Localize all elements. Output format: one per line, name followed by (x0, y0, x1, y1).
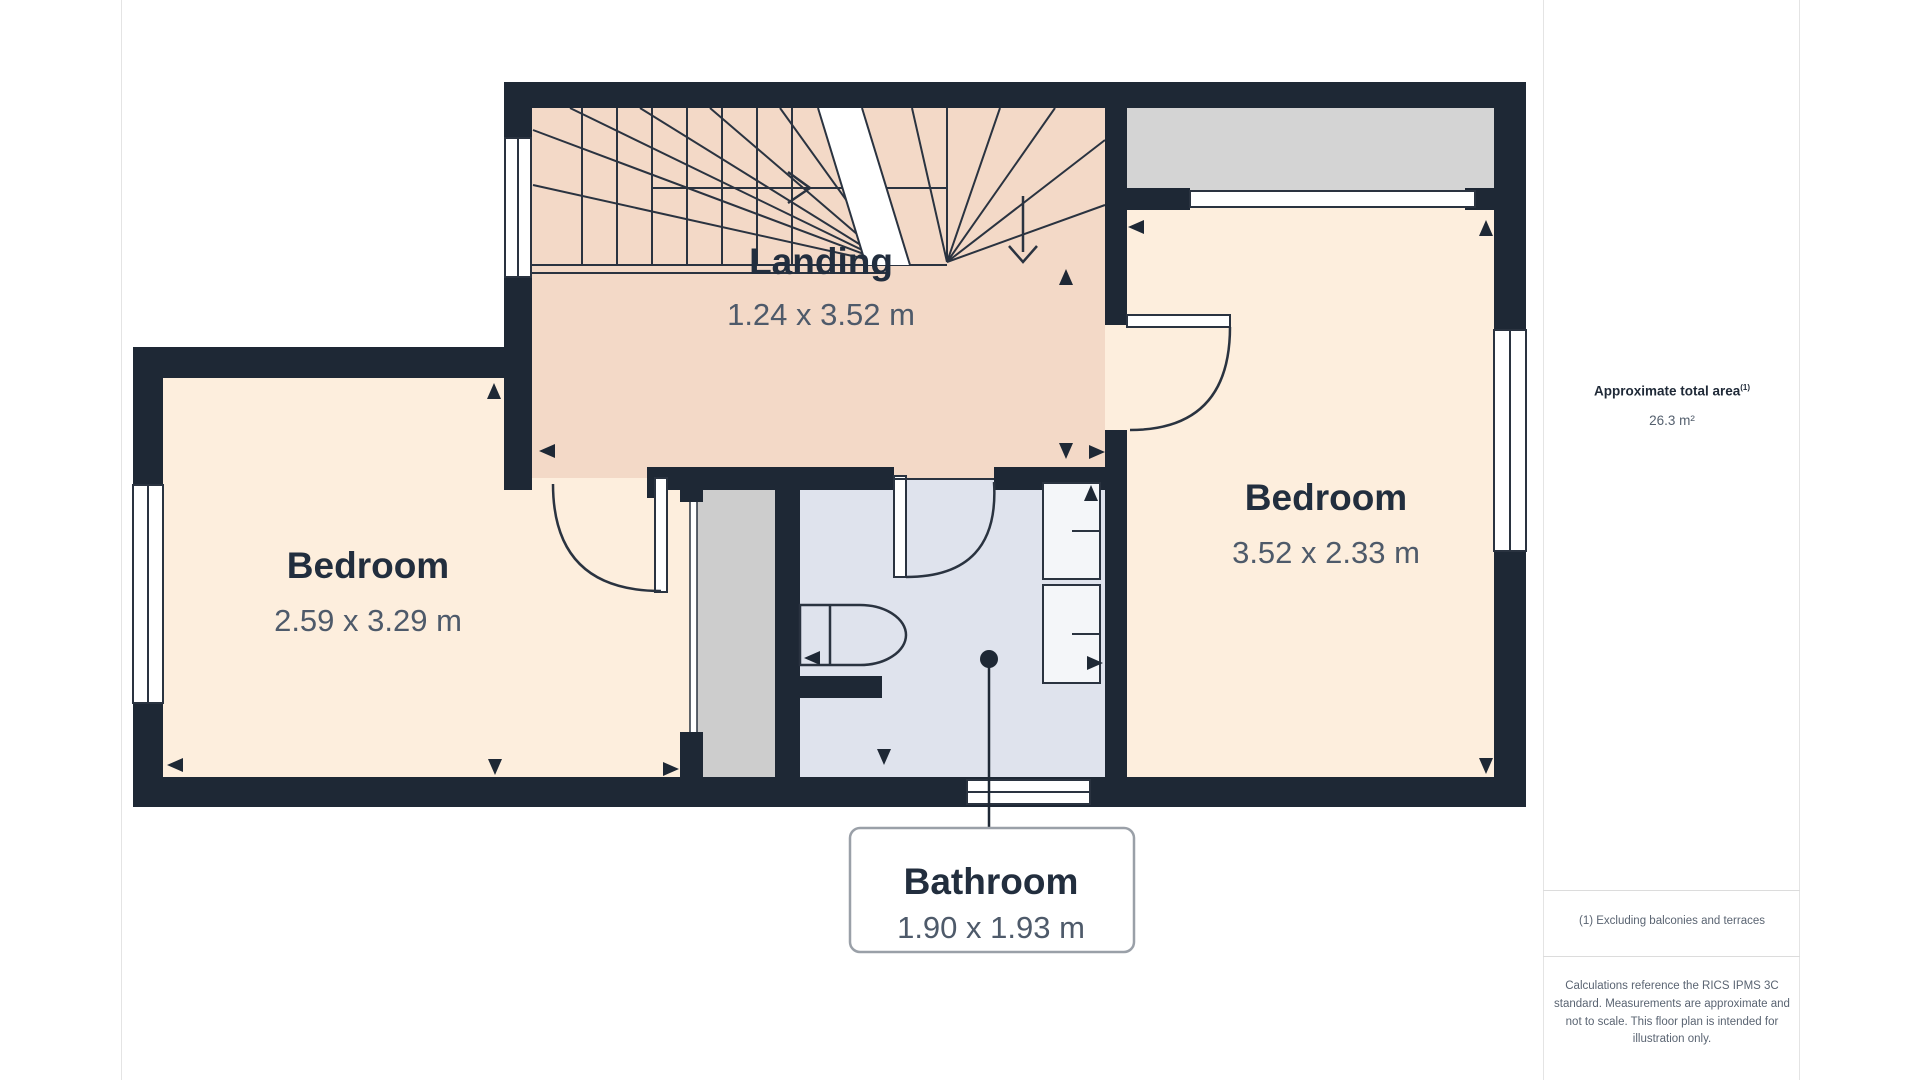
window-stair-left (505, 138, 531, 277)
wall-stair-left-lower (504, 273, 532, 490)
bedroom-left-name: Bedroom (287, 545, 449, 586)
wall-top (504, 82, 1526, 108)
wall-bathroom-right (1105, 430, 1127, 777)
wall-left-upper (133, 347, 163, 487)
bathroom-callout: Bathroom 1.90 x 1.93 m (850, 828, 1134, 952)
sidebar-divider-bottom (1543, 956, 1800, 957)
disclaimer-note: Calculations reference the RICS IPMS 3C … (1552, 978, 1792, 1049)
left-doorway-floor (532, 478, 647, 490)
wall-bathroom-stub (800, 676, 882, 698)
leader-dot (980, 650, 998, 668)
window-bathroom-bottom (967, 780, 1090, 804)
bathroom-name: Bathroom (904, 861, 1079, 902)
wall-landing-bottom-left (647, 467, 894, 490)
bathroom-doorway-floor (894, 479, 994, 490)
sidebar-divider-top (1543, 890, 1800, 891)
kneewall-strip (1190, 191, 1475, 207)
wall-closet-top-stub (680, 488, 703, 502)
total-area-label: Approximate total area(1) (1548, 383, 1796, 399)
wall-closet-bottom-stub (680, 732, 703, 777)
landing-name: Landing (749, 241, 893, 282)
bathroom-dims: 1.90 x 1.93 m (897, 910, 1085, 945)
landing-dims: 1.24 x 3.52 m (727, 297, 915, 332)
bedroom-right-dims: 3.52 x 2.33 m (1232, 535, 1420, 570)
wall-bottom (133, 777, 1526, 807)
wall-right-upper (1494, 82, 1526, 332)
total-area-value: 26.3 m² (1548, 413, 1796, 428)
eaves-gray-area (1127, 108, 1494, 190)
total-area-label-text: Approximate total area (1594, 384, 1740, 399)
basin-unit (1043, 585, 1100, 683)
floorplan-page: Landing 1.24 x 3.52 m Bedroom 2.59 x 3.2… (0, 0, 1920, 1080)
wall-right-lower (1494, 549, 1526, 807)
wall-bathroom-left (775, 490, 800, 777)
closet-partition (690, 502, 697, 732)
wall-stair-left-upper (504, 82, 532, 142)
right-doorway-floor (1105, 325, 1127, 430)
wall-bedroom-left-top (133, 347, 515, 378)
bedroom-left-dims: 2.59 x 3.29 m (274, 603, 462, 638)
window-bedroom-right (1494, 330, 1526, 551)
area-footnote: (1) Excluding balconies and terraces (1548, 915, 1796, 927)
bedroom-right-name: Bedroom (1245, 477, 1407, 518)
total-area-superscript: (1) (1740, 383, 1750, 392)
wall-landing-right-upper (1105, 108, 1127, 325)
wall-kneewall-left-cap (1127, 188, 1190, 210)
window-bedroom-left (133, 485, 163, 703)
closet-floor (697, 490, 775, 777)
